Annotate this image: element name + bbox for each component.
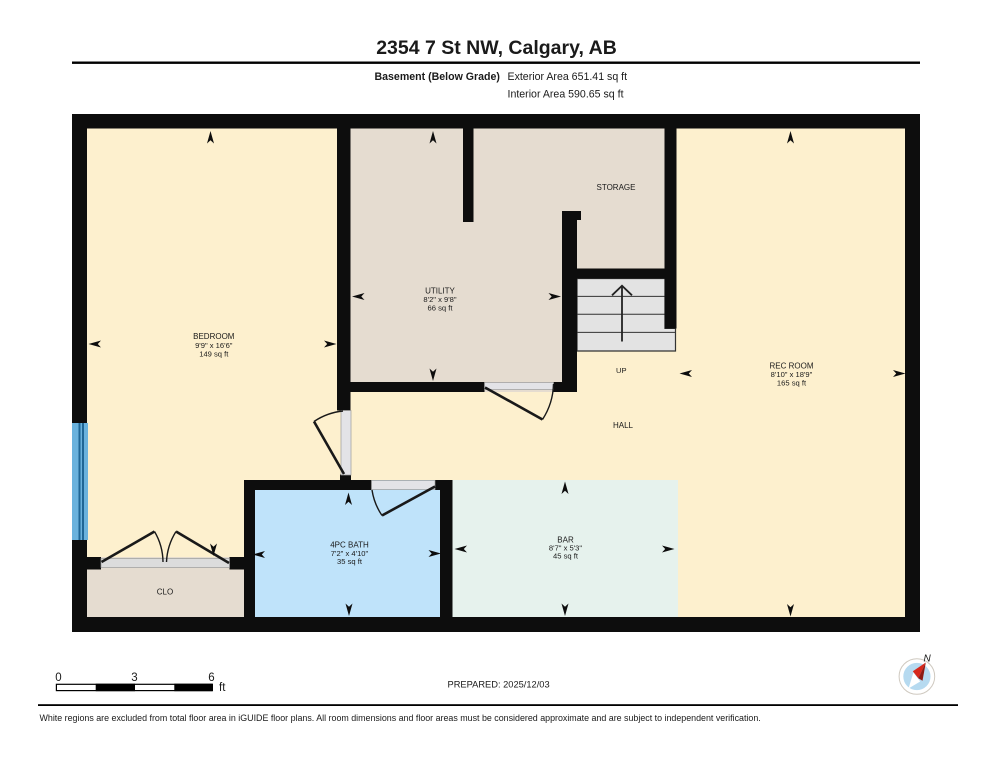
svg-text:STORAGE: STORAGE: [597, 183, 636, 192]
svg-text:0: 0: [55, 672, 61, 684]
svg-text:ft: ft: [219, 682, 226, 694]
svg-text:Exterior Area 651.41 sq ft: Exterior Area 651.41 sq ft: [508, 71, 628, 83]
svg-text:2354 7 St NW, Calgary, AB: 2354 7 St NW, Calgary, AB: [376, 37, 617, 59]
svg-text:UP: UP: [616, 366, 627, 375]
svg-text:3: 3: [131, 672, 137, 684]
svg-text:Basement (Below Grade): Basement (Below Grade): [375, 71, 500, 83]
svg-text:6: 6: [208, 672, 214, 684]
svg-text:PREPARED: 2025/12/03: PREPARED: 2025/12/03: [448, 680, 550, 690]
svg-text:Interior Area 590.65 sq ft: Interior Area 590.65 sq ft: [508, 89, 624, 101]
svg-text:N: N: [924, 654, 932, 665]
svg-text:White regions are excluded fro: White regions are excluded from total fl…: [40, 713, 761, 723]
svg-text:149 sq ft: 149 sq ft: [199, 350, 229, 359]
svg-text:45 sq ft: 45 sq ft: [553, 552, 579, 561]
svg-text:CLO: CLO: [157, 588, 173, 597]
svg-text:66 sq ft: 66 sq ft: [428, 304, 454, 313]
svg-text:35 sq ft: 35 sq ft: [337, 557, 363, 566]
svg-text:BEDROOM: BEDROOM: [193, 332, 235, 341]
svg-text:HALL: HALL: [613, 421, 634, 430]
svg-text:165 sq ft: 165 sq ft: [777, 379, 807, 388]
